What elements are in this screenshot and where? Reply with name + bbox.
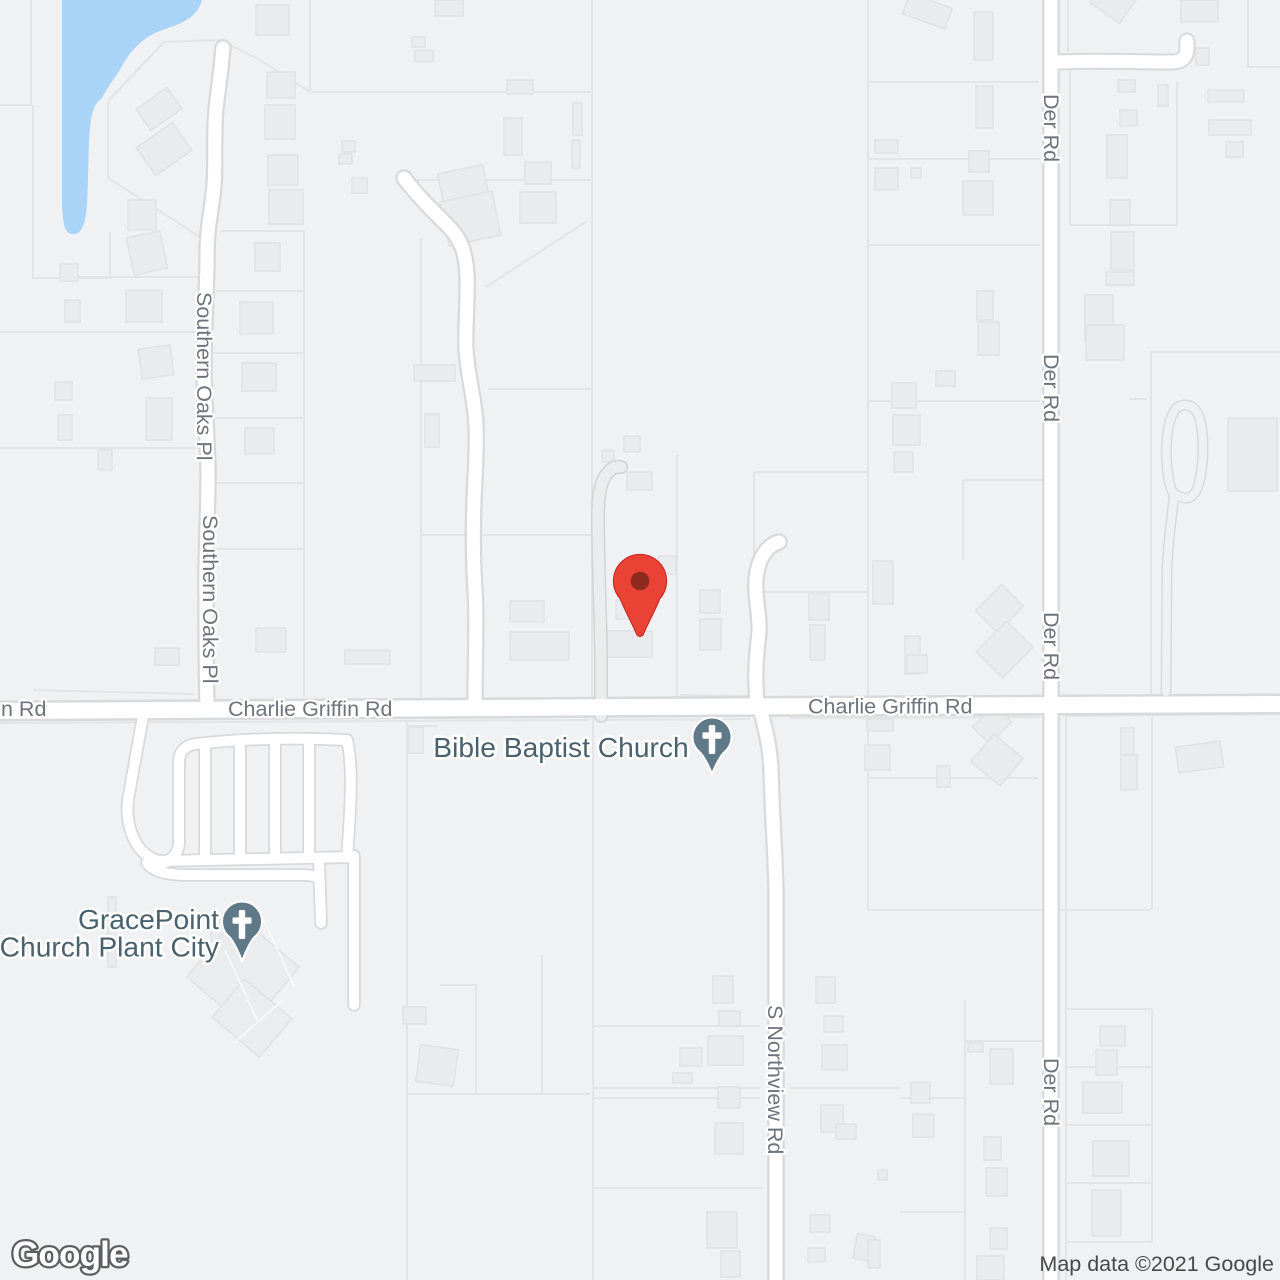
svg-text:S Northview Rd: S Northview Rd [763,1005,787,1154]
svg-text:Charlie Griffin Rd: Charlie Griffin Rd [808,695,973,719]
svg-text:Der Rd: Der Rd [1039,94,1063,162]
svg-text:Church Plant City: Church Plant City [0,931,220,963]
svg-text:Charlie Griffin Rd: Charlie Griffin Rd [228,697,393,721]
svg-text:n Rd: n Rd [1,697,46,721]
svg-text:Der Rd: Der Rd [1039,354,1063,422]
svg-text:Southern Oaks Pl: Southern Oaks Pl [192,292,216,461]
svg-text:Map data ©2021 Google: Map data ©2021 Google [1039,1252,1274,1276]
svg-text:Southern Oaks Pl: Southern Oaks Pl [198,515,222,684]
svg-text:Google: Google [12,1235,128,1274]
svg-text:Bible Baptist Church: Bible Baptist Church [433,731,688,763]
svg-text:Der Rd: Der Rd [1039,1058,1063,1126]
svg-text:Der Rd: Der Rd [1039,612,1063,680]
